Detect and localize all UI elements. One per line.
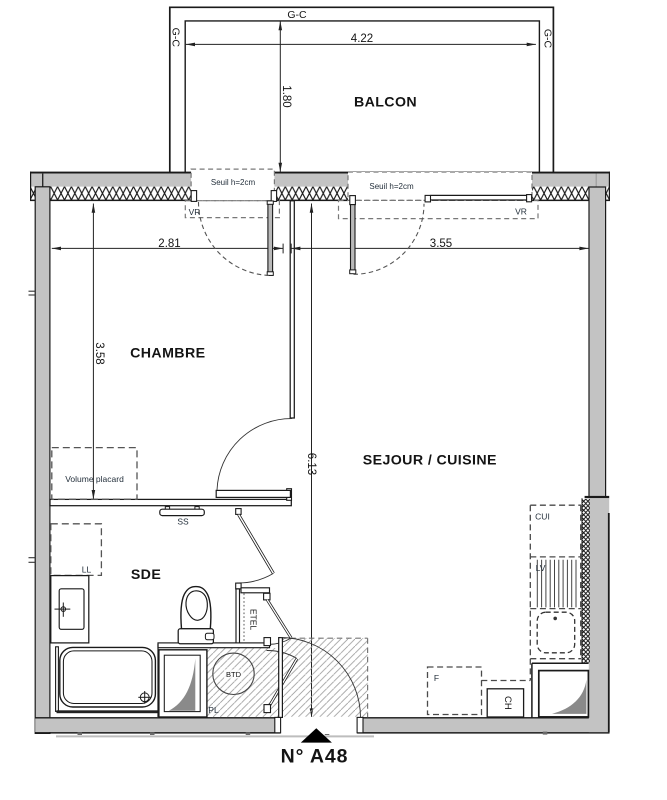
svg-text:Seuil h=2cm: Seuil h=2cm bbox=[369, 182, 414, 191]
svg-text:CUI: CUI bbox=[535, 512, 550, 522]
svg-text:BALCON: BALCON bbox=[354, 95, 417, 111]
svg-text:G-C: G-C bbox=[542, 29, 554, 49]
svg-text:2.81: 2.81 bbox=[158, 238, 180, 250]
svg-text:CH: CH bbox=[502, 696, 513, 710]
svg-text:SEJOUR / CUISINE: SEJOUR / CUISINE bbox=[363, 452, 497, 468]
svg-text:F: F bbox=[434, 673, 439, 683]
svg-text:3.58: 3.58 bbox=[93, 342, 105, 364]
svg-text:G-C: G-C bbox=[169, 28, 181, 48]
svg-text:Seuil h=2cm: Seuil h=2cm bbox=[211, 178, 256, 187]
svg-text:G-C: G-C bbox=[287, 9, 307, 21]
svg-text:CHAMBRE: CHAMBRE bbox=[130, 346, 205, 362]
svg-text:SDE: SDE bbox=[131, 567, 161, 583]
svg-text:LL: LL bbox=[82, 565, 92, 575]
svg-text:PL: PL bbox=[208, 705, 219, 715]
svg-text:1.80: 1.80 bbox=[280, 85, 292, 107]
svg-text:3.55: 3.55 bbox=[430, 238, 452, 250]
svg-text:N° A48: N° A48 bbox=[281, 746, 349, 768]
svg-text:ETEL: ETEL bbox=[249, 609, 259, 631]
svg-text:4.22: 4.22 bbox=[351, 33, 373, 45]
svg-text:6.13: 6.13 bbox=[305, 453, 317, 475]
svg-text:BTD: BTD bbox=[226, 670, 242, 679]
svg-text:LV: LV bbox=[536, 563, 546, 573]
svg-text:VR: VR bbox=[515, 207, 527, 217]
svg-text:SS: SS bbox=[177, 517, 189, 527]
svg-text:Volume placard: Volume placard bbox=[65, 474, 124, 484]
